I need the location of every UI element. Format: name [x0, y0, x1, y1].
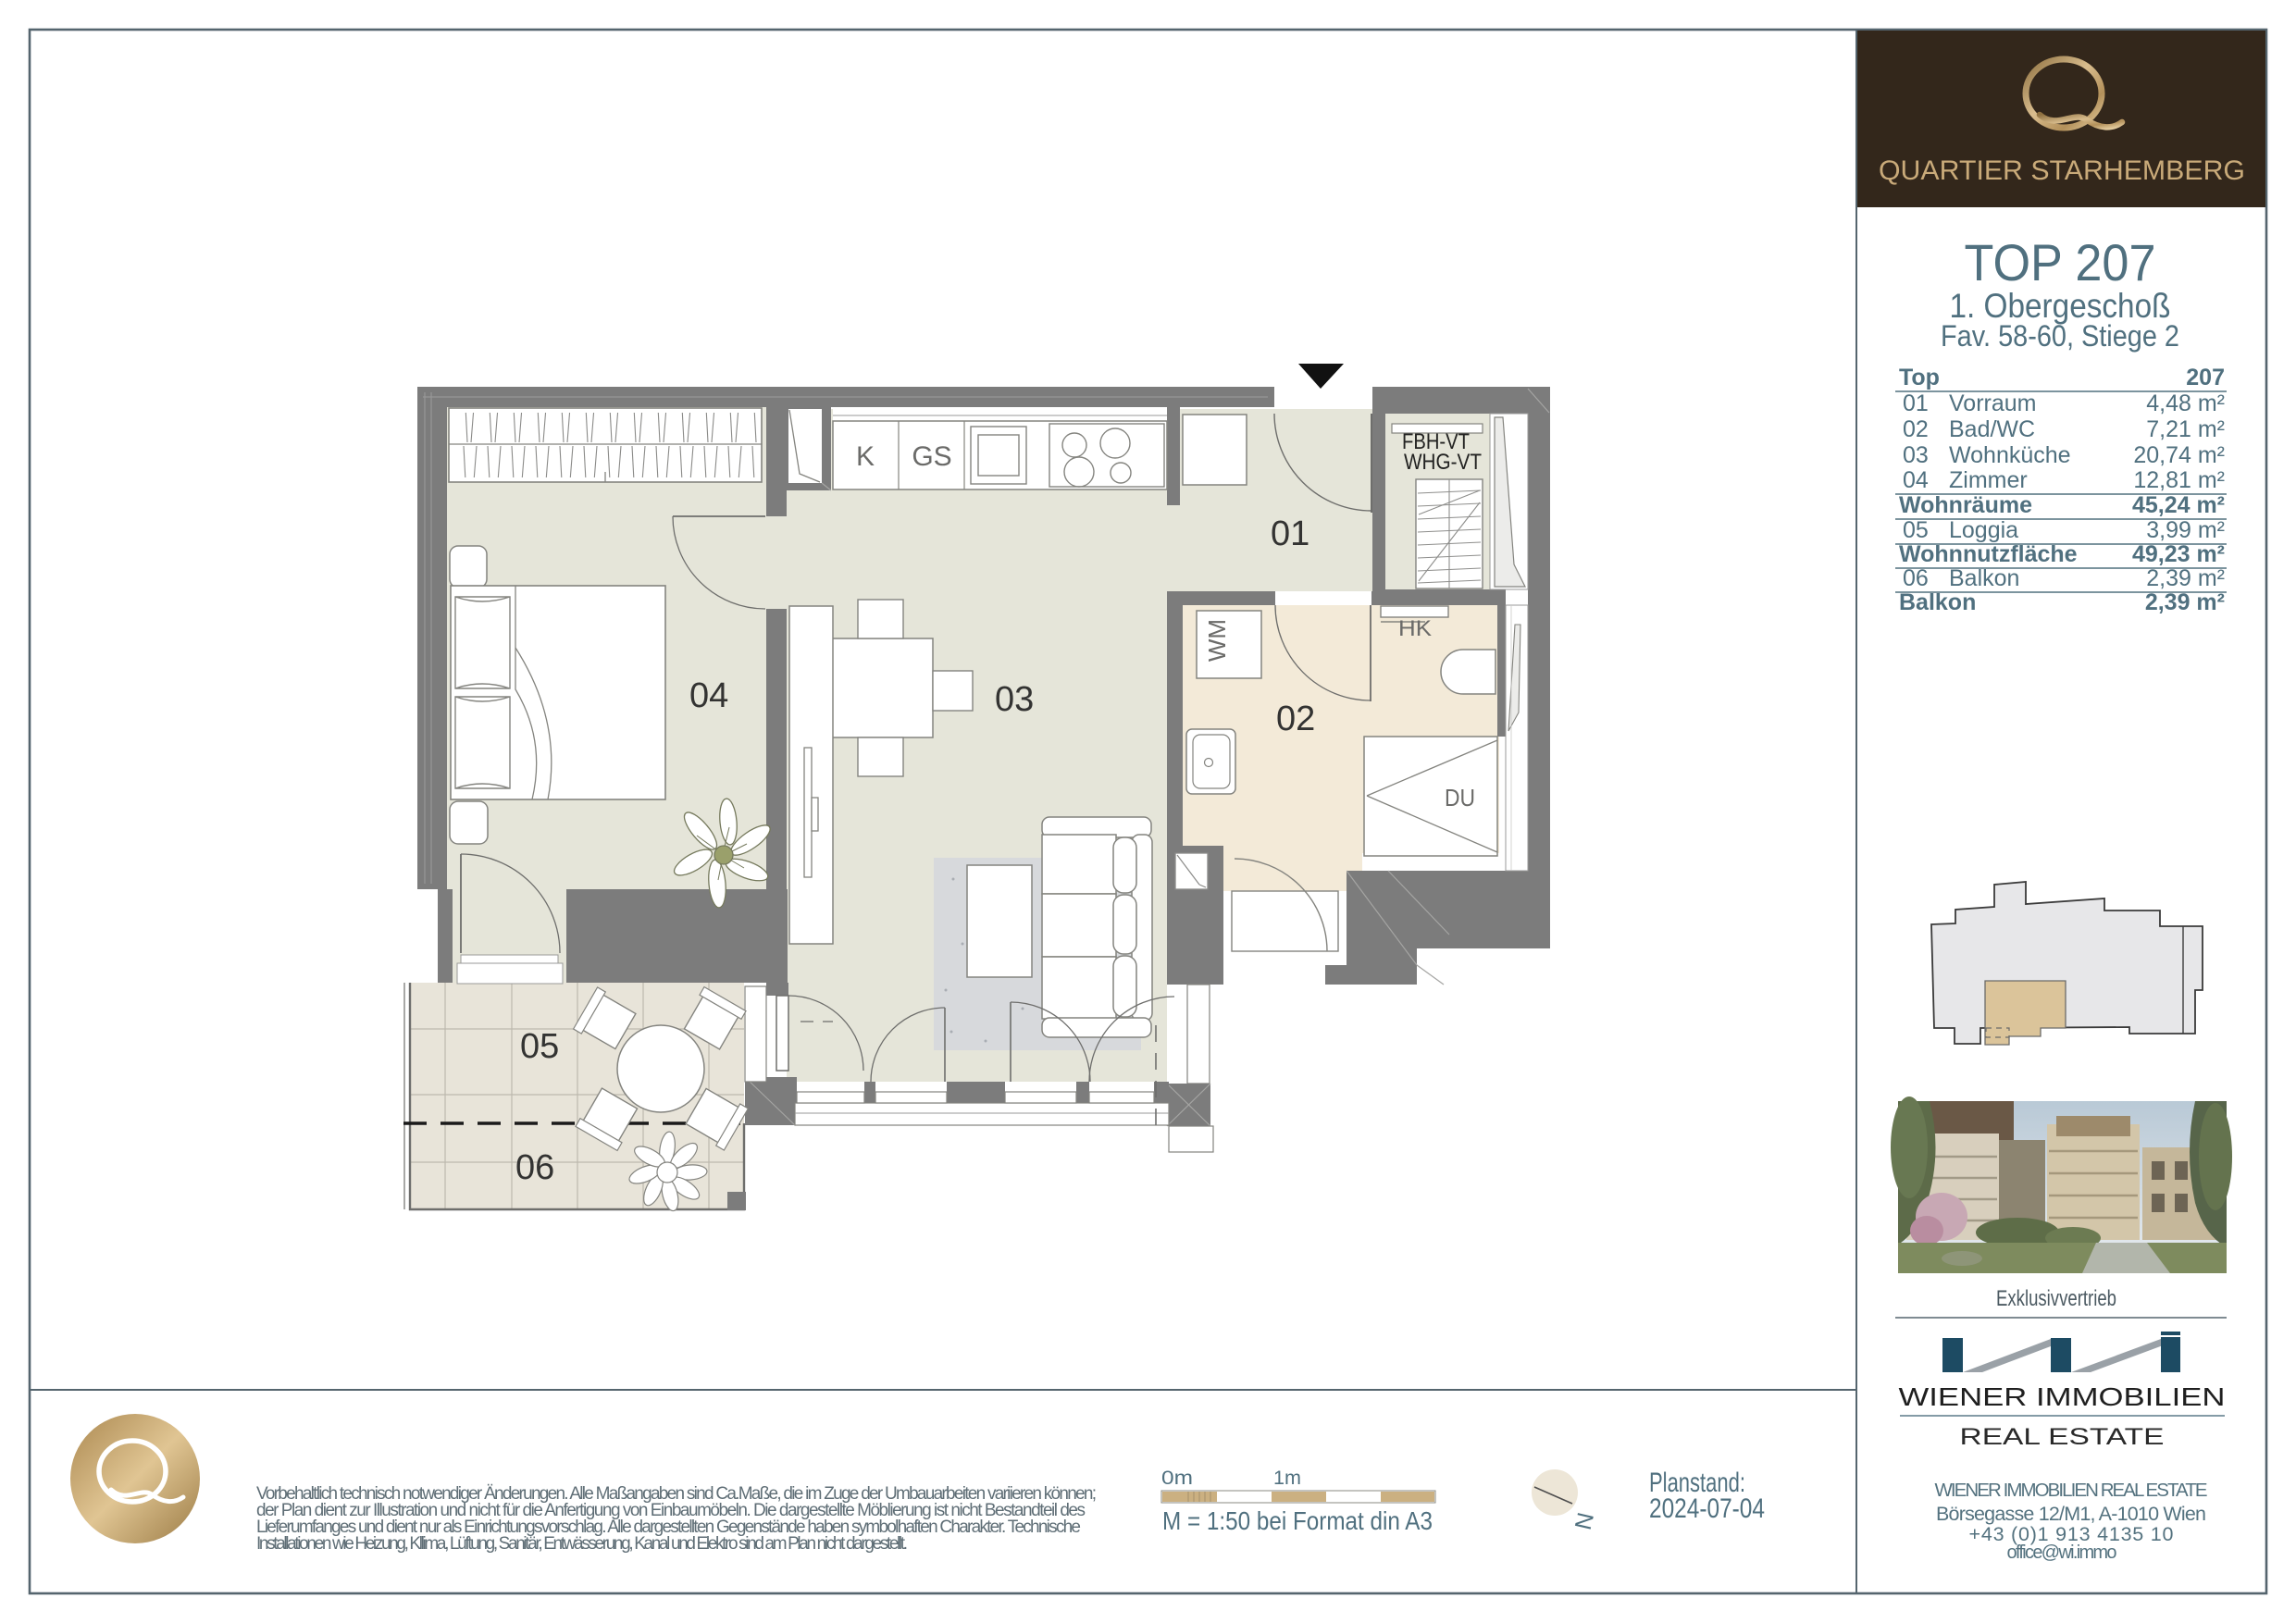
- svg-text:Bad/WC: Bad/WC: [1949, 416, 2035, 442]
- svg-text:WIENER IMMOBILIEN: WIENER IMMOBILIEN: [1899, 1382, 2226, 1411]
- svg-text:WM: WM: [1203, 619, 1231, 662]
- svg-text:49,23 m²: 49,23 m²: [2132, 541, 2225, 567]
- svg-text:WHG-VT: WHG-VT: [1404, 450, 1482, 475]
- svg-text:Wohnnutzfläche: Wohnnutzfläche: [1899, 541, 2078, 567]
- svg-text:Exklusivvertrieb: Exklusivvertrieb: [1996, 1286, 2116, 1311]
- svg-text:Wohnküche: Wohnküche: [1949, 442, 2071, 468]
- svg-text:207: 207: [2186, 365, 2225, 390]
- svg-text:REAL ESTATE: REAL ESTATE: [1960, 1424, 2165, 1450]
- svg-text:45,24 m²: 45,24 m²: [2132, 492, 2225, 518]
- svg-text:02: 02: [1276, 700, 1315, 738]
- svg-text:2,39 m²: 2,39 m²: [2145, 589, 2225, 615]
- svg-text:05: 05: [1903, 517, 1929, 543]
- svg-text:04: 04: [689, 676, 728, 715]
- svg-text:Loggia: Loggia: [1949, 517, 2018, 543]
- svg-text:05: 05: [520, 1027, 559, 1066]
- svg-text:4,48 m²: 4,48 m²: [2146, 390, 2225, 416]
- svg-text:Fav. 58-60, Stiege 2: Fav. 58-60, Stiege 2: [1941, 319, 2179, 353]
- svg-text:01: 01: [1271, 514, 1309, 553]
- svg-text:3,99 m²: 3,99 m²: [2146, 517, 2225, 543]
- svg-text:TOP 207: TOP 207: [1965, 233, 2156, 291]
- svg-text:03: 03: [995, 680, 1034, 719]
- svg-text:GS: GS: [912, 441, 951, 472]
- svg-text:1m: 1m: [1273, 1468, 1301, 1489]
- svg-text:20,74 m²: 20,74 m²: [2133, 442, 2225, 468]
- svg-text:Installationen wie Heizung, Kl: Installationen wie Heizung, Kllima, Lüft…: [256, 1534, 908, 1554]
- svg-text:Vorraum: Vorraum: [1949, 390, 2036, 416]
- svg-text:04: 04: [1903, 467, 1929, 493]
- svg-text:06: 06: [515, 1148, 554, 1187]
- svg-text:2024-07-04: 2024-07-04: [1649, 1493, 1765, 1524]
- svg-text:WIENER IMMOBILIEN REAL ESTATE: WIENER IMMOBILIEN REAL ESTATE: [1935, 1480, 2208, 1501]
- svg-text:Wohnräume: Wohnräume: [1899, 492, 2032, 518]
- svg-text:Top: Top: [1899, 365, 1940, 390]
- svg-text:DU: DU: [1445, 784, 1475, 811]
- svg-text:0m: 0m: [1161, 1468, 1193, 1489]
- svg-text:Börsegasse 12/M1, A-1010 Wien: Börsegasse 12/M1, A-1010 Wien: [1936, 1503, 2206, 1525]
- svg-text:02: 02: [1903, 416, 1929, 442]
- svg-text:7,21 m²: 7,21 m²: [2146, 416, 2225, 442]
- svg-text:M = 1:50 bei Format din A3: M = 1:50 bei Format din A3: [1162, 1506, 1433, 1535]
- svg-text:Balkon: Balkon: [1949, 565, 2019, 591]
- svg-text:K: K: [856, 441, 875, 472]
- svg-text:Zimmer: Zimmer: [1949, 467, 2028, 493]
- svg-text:2,39 m²: 2,39 m²: [2146, 565, 2225, 591]
- svg-text:QUARTIER STARHEMBERG: QUARTIER STARHEMBERG: [1879, 155, 2245, 186]
- svg-text:03: 03: [1903, 442, 1929, 468]
- svg-text:Balkon: Balkon: [1899, 589, 1976, 615]
- svg-text:01: 01: [1903, 390, 1929, 416]
- svg-text:office@wi.immo: office@wi.immo: [2007, 1542, 2117, 1563]
- svg-text:HK: HK: [1398, 616, 1432, 641]
- svg-text:06: 06: [1903, 565, 1929, 591]
- svg-text:12,81 m²: 12,81 m²: [2133, 467, 2225, 493]
